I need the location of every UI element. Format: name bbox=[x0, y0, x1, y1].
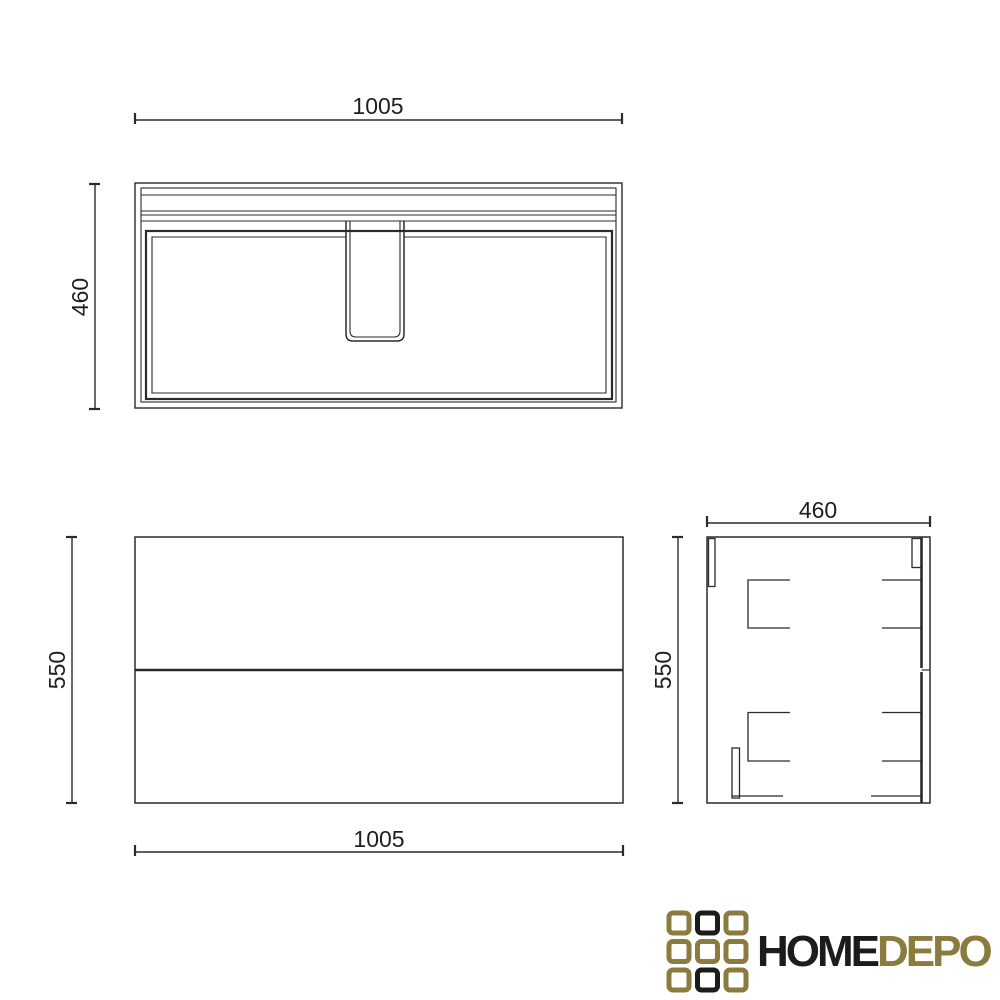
lower-drawer-section bbox=[748, 713, 790, 762]
basin-cavity-inner bbox=[152, 237, 606, 393]
top-view: 1005 460 bbox=[67, 93, 622, 409]
logo-grid-square bbox=[669, 913, 689, 933]
logo-grid-square bbox=[726, 942, 746, 962]
dimension-label-front-height: 550 bbox=[44, 651, 70, 689]
logo-wordmark: HOMEDEPO bbox=[757, 927, 991, 976]
countertop-outline-inner bbox=[141, 188, 616, 402]
side-view-height-dimension: 550 bbox=[650, 537, 683, 803]
top-view-width-dimension: 1005 bbox=[135, 93, 622, 124]
logo-wordmark-secondary: DEPO bbox=[877, 927, 991, 976]
mounting-bracket-top-left bbox=[709, 539, 716, 587]
logo-grid-square bbox=[726, 970, 746, 990]
top-view-depth-dimension: 460 bbox=[67, 184, 100, 409]
mounting-bracket-top-right bbox=[912, 539, 922, 568]
front-view: 550 1005 bbox=[44, 537, 623, 856]
logo-grid-square bbox=[669, 970, 689, 990]
center-cutout-outer bbox=[346, 221, 404, 341]
upper-drawer-section bbox=[748, 580, 790, 628]
front-view-width-dimension: 1005 bbox=[135, 826, 623, 856]
logo-grid-square bbox=[698, 913, 718, 933]
logo-wordmark-primary: HOME bbox=[757, 927, 879, 976]
brand-logo: HOMEDEPO bbox=[669, 913, 991, 990]
logo-grid-square bbox=[698, 942, 718, 962]
side-view: 460 550 bbox=[650, 497, 930, 803]
logo-grid-square bbox=[698, 970, 718, 990]
technical-drawing-canvas: 1005 460 bbox=[0, 0, 1000, 1000]
center-cutout-inner bbox=[350, 221, 400, 337]
logo-grid-square bbox=[669, 942, 689, 962]
cabinet-side-outline bbox=[707, 537, 930, 803]
side-view-depth-dimension: 460 bbox=[707, 497, 930, 527]
dimension-label-top-width: 1005 bbox=[352, 93, 403, 119]
dimension-label-front-width: 1005 bbox=[353, 826, 404, 852]
dimension-label-top-depth: 460 bbox=[67, 278, 93, 316]
dimension-label-side-depth: 460 bbox=[799, 497, 837, 523]
front-view-height-dimension: 550 bbox=[44, 537, 77, 803]
logo-grid-icon bbox=[669, 913, 746, 990]
mounting-bracket-bottom-left bbox=[732, 748, 740, 798]
basin-cavity-outer bbox=[146, 231, 612, 399]
countertop-outline-outer bbox=[135, 183, 622, 408]
logo-grid-square bbox=[726, 913, 746, 933]
dimension-label-side-height: 550 bbox=[650, 651, 676, 689]
drawing-page: 1005 460 bbox=[0, 0, 1000, 1000]
